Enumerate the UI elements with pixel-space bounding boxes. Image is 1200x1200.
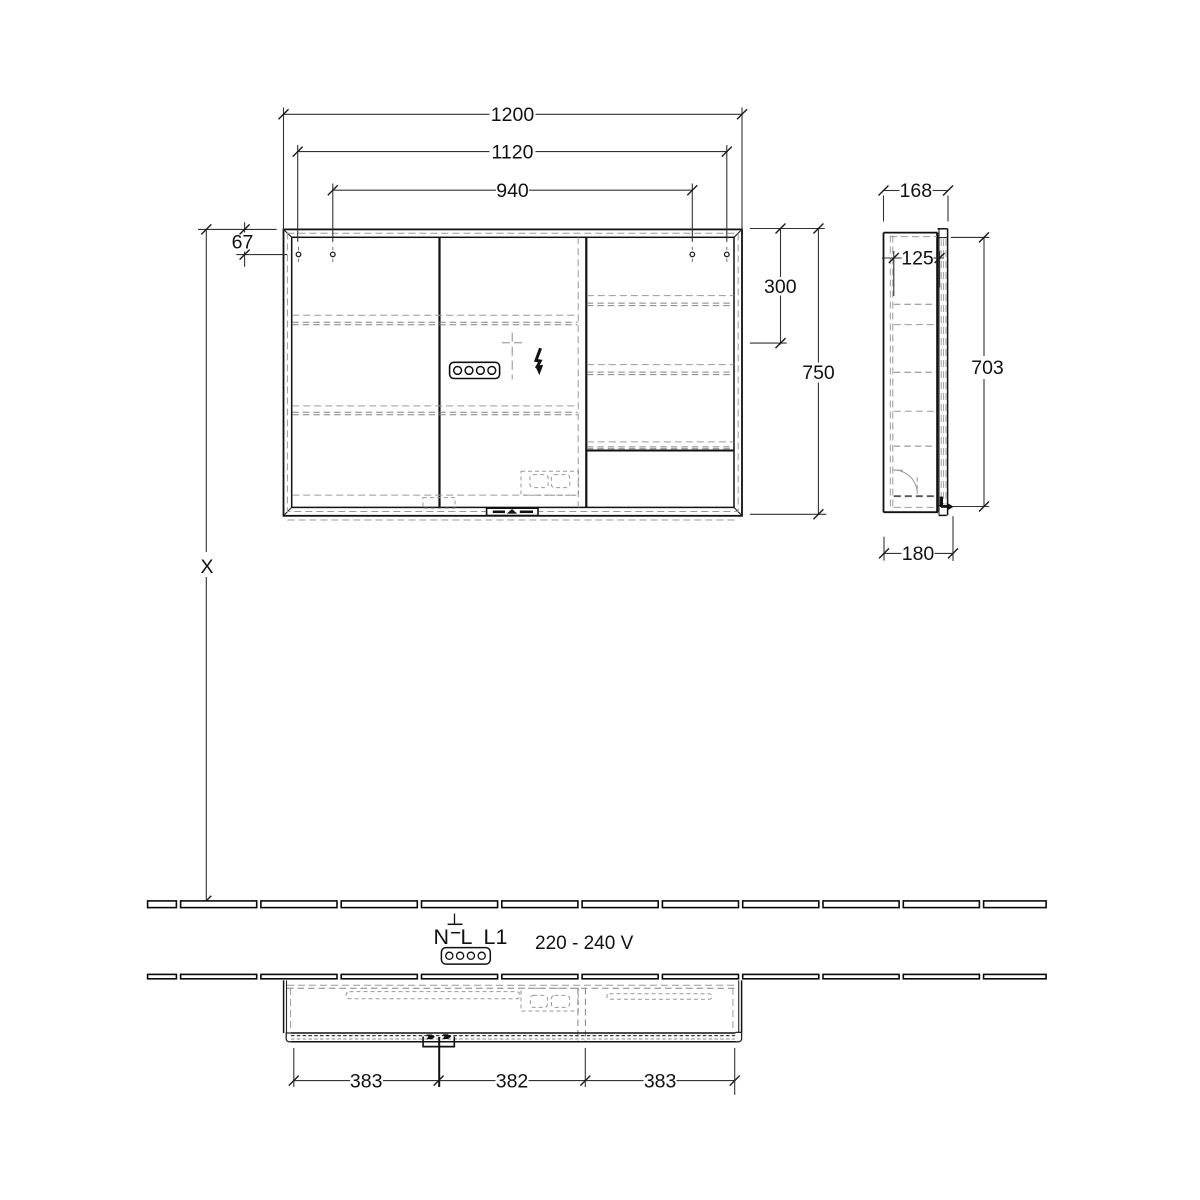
svg-text:750: 750 bbox=[802, 362, 835, 384]
svg-text:703: 703 bbox=[971, 357, 1004, 379]
svg-text:L: L bbox=[461, 925, 473, 949]
svg-text:940: 940 bbox=[496, 180, 529, 202]
svg-text:180: 180 bbox=[902, 543, 935, 565]
svg-text:220 - 240 V: 220 - 240 V bbox=[535, 933, 634, 954]
svg-text:X: X bbox=[200, 556, 213, 578]
svg-text:383: 383 bbox=[350, 1070, 383, 1092]
svg-text:1200: 1200 bbox=[491, 104, 535, 126]
svg-text:N: N bbox=[434, 925, 450, 949]
svg-text:300: 300 bbox=[764, 276, 797, 298]
svg-text:L1: L1 bbox=[484, 925, 508, 949]
svg-text:125: 125 bbox=[901, 248, 934, 270]
svg-text:383: 383 bbox=[644, 1070, 677, 1092]
svg-text:168: 168 bbox=[900, 180, 933, 202]
svg-text:382: 382 bbox=[496, 1070, 529, 1092]
svg-text:67: 67 bbox=[232, 232, 254, 254]
svg-text:1120: 1120 bbox=[492, 141, 534, 163]
